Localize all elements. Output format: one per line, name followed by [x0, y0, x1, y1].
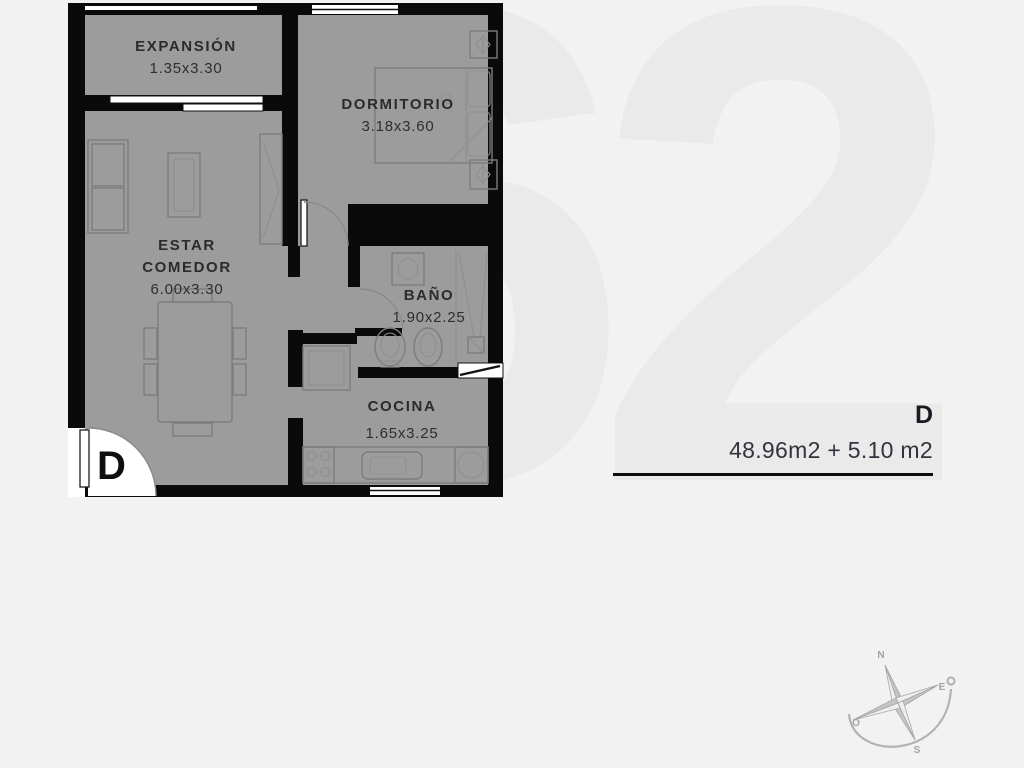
annotation-rule [613, 473, 933, 476]
unit-label: D [613, 403, 933, 428]
south-label: S [914, 745, 921, 756]
room-label-dormitorio: DORMITORIO [341, 96, 454, 113]
room-dims-cocina: 1.65x3.25 [365, 425, 438, 442]
east-label: E [939, 682, 946, 693]
unit-annotation: D 48.96m2 + 5.10 m2 [613, 403, 933, 476]
room-label-comedor: COMEDOR [142, 259, 232, 276]
room-dims-estar: 6.00x3.30 [150, 281, 223, 298]
floorplan-drawing: D [0, 0, 1024, 768]
room-label-cocina: COCINA [368, 398, 437, 415]
compass-east-dot [948, 678, 955, 685]
entry-unit-label: D [97, 444, 126, 488]
room-label-bano: BAÑO [404, 286, 455, 304]
north-label: N [877, 650, 884, 661]
unit-area-text: 48.96m2 + 5.10 m2 [613, 439, 933, 462]
room-dims-dormitorio: 3.18x3.60 [361, 118, 434, 135]
entry-door-leaf [80, 430, 89, 487]
compass-rose: N E S O [849, 650, 955, 756]
room-dims-expansion: 1.35x3.30 [149, 60, 222, 77]
west-label: O [852, 718, 860, 729]
kitchen-window [370, 487, 440, 495]
shelf-niche [458, 363, 503, 378]
room-label-expansion: EXPANSIÓN [135, 37, 237, 55]
page: 62 [0, 0, 1024, 768]
bedroom-window [312, 5, 398, 14]
balcony-edge-line [85, 6, 257, 10]
room-label-estar: ESTAR [158, 237, 216, 254]
room-dims-bano: 1.90x2.25 [392, 309, 465, 326]
